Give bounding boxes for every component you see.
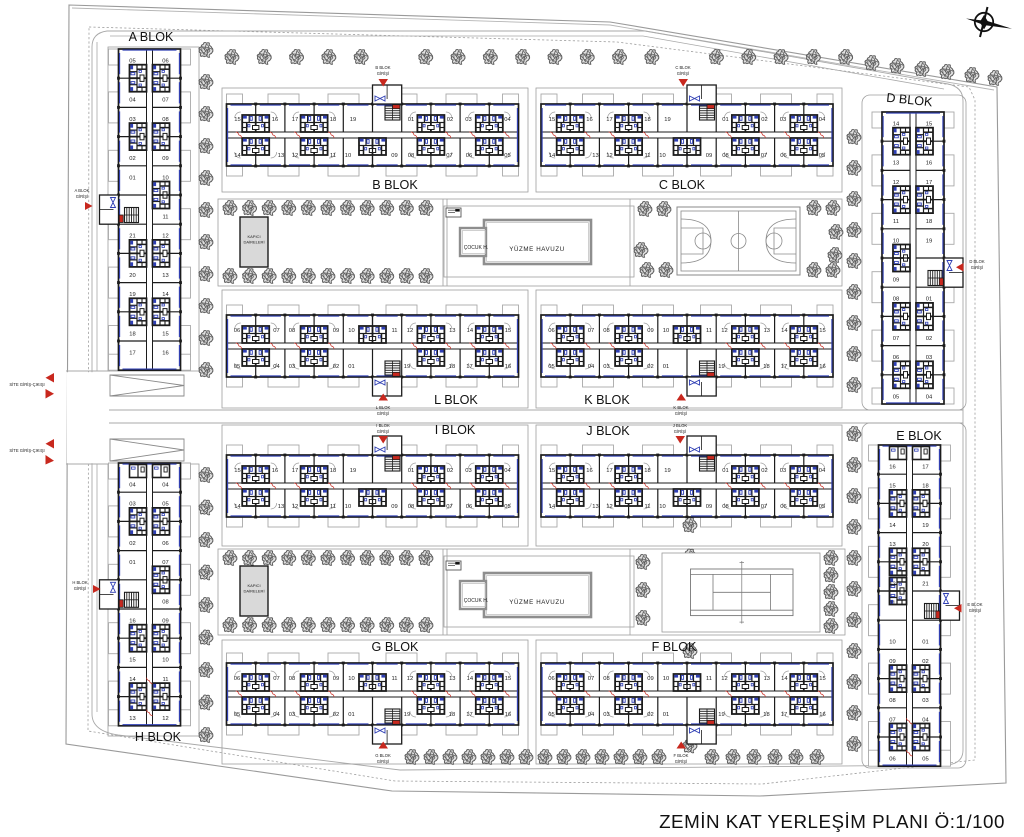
svg-text:04: 04: [129, 483, 136, 489]
svg-text:18: 18: [763, 712, 769, 718]
svg-text:11: 11: [391, 676, 397, 682]
svg-text:15: 15: [234, 117, 240, 123]
svg-text:15: 15: [549, 117, 555, 123]
svg-text:GİRİŞİ: GİRİŞİ: [971, 265, 984, 270]
svg-text:03: 03: [926, 355, 932, 361]
svg-text:C BLOK: C BLOK: [659, 178, 706, 192]
svg-text:17: 17: [129, 351, 135, 357]
svg-text:01: 01: [348, 712, 354, 718]
svg-text:G BLOK: G BLOK: [375, 753, 391, 758]
svg-text:13: 13: [278, 504, 284, 510]
svg-text:12: 12: [162, 716, 168, 722]
svg-text:E BLOK: E BLOK: [967, 602, 982, 607]
svg-text:12: 12: [407, 676, 413, 682]
svg-text:07: 07: [889, 717, 895, 723]
svg-text:16: 16: [272, 468, 278, 474]
svg-text:14: 14: [467, 328, 474, 334]
svg-text:08: 08: [289, 328, 295, 334]
svg-text:06: 06: [234, 676, 240, 682]
svg-text:01: 01: [722, 117, 728, 123]
svg-text:10: 10: [889, 640, 895, 646]
svg-text:04: 04: [588, 712, 595, 718]
svg-text:E BLOK: E BLOK: [896, 429, 942, 443]
svg-text:GİRİŞİ: GİRİŞİ: [969, 608, 982, 613]
svg-text:12: 12: [292, 153, 298, 159]
svg-text:05: 05: [162, 502, 168, 508]
svg-text:09: 09: [889, 659, 895, 665]
svg-text:15: 15: [234, 468, 240, 474]
svg-text:11: 11: [644, 153, 650, 159]
svg-text:21: 21: [129, 234, 135, 240]
svg-text:09: 09: [333, 676, 339, 682]
svg-text:GİRİŞİ: GİRİŞİ: [674, 429, 687, 434]
svg-text:04: 04: [273, 364, 280, 370]
svg-text:GİRİŞİ: GİRİŞİ: [677, 71, 690, 76]
svg-text:G BLOK: G BLOK: [372, 640, 419, 654]
svg-text:19: 19: [664, 117, 670, 123]
svg-text:16: 16: [819, 364, 825, 370]
svg-text:13: 13: [449, 328, 455, 334]
svg-text:GİRİŞİ: GİRİŞİ: [377, 411, 390, 416]
svg-text:18: 18: [330, 468, 336, 474]
svg-text:14: 14: [129, 677, 136, 683]
svg-text:A BLOK: A BLOK: [129, 30, 174, 44]
svg-text:03: 03: [129, 502, 135, 508]
svg-text:J BLOK: J BLOK: [673, 423, 688, 428]
svg-text:16: 16: [889, 465, 895, 471]
svg-text:21: 21: [922, 581, 928, 587]
svg-text:06: 06: [162, 59, 168, 65]
svg-text:04: 04: [273, 712, 280, 718]
svg-text:14: 14: [162, 292, 169, 298]
svg-text:17: 17: [606, 117, 612, 123]
svg-text:15: 15: [819, 676, 825, 682]
svg-text:GİRİŞİ: GİRİŞİ: [76, 194, 89, 199]
svg-text:05: 05: [548, 364, 554, 370]
svg-text:04: 04: [922, 717, 929, 723]
svg-text:GİRİŞİ: GİRİŞİ: [675, 411, 688, 416]
svg-text:D BLOK: D BLOK: [886, 91, 934, 110]
svg-text:18: 18: [922, 484, 928, 490]
svg-text:11: 11: [893, 219, 899, 225]
svg-text:02: 02: [761, 117, 767, 123]
svg-text:07: 07: [761, 153, 767, 159]
svg-text:13: 13: [893, 161, 899, 167]
svg-text:11: 11: [330, 153, 336, 159]
svg-text:C BLOK: C BLOK: [675, 65, 691, 70]
svg-text:18: 18: [644, 468, 650, 474]
svg-text:13: 13: [764, 328, 770, 334]
svg-text:DAİRELERİ: DAİRELERİ: [243, 589, 264, 594]
svg-text:06: 06: [548, 676, 554, 682]
svg-text:GİRİŞİ: GİRİŞİ: [377, 759, 390, 764]
svg-text:19: 19: [718, 712, 724, 718]
svg-text:15: 15: [505, 328, 511, 334]
svg-text:14: 14: [234, 504, 241, 510]
svg-text:12: 12: [162, 234, 168, 240]
svg-text:18: 18: [926, 219, 932, 225]
svg-text:06: 06: [780, 153, 786, 159]
svg-text:GİRİŞİ: GİRİŞİ: [377, 71, 390, 76]
svg-text:12: 12: [893, 180, 899, 186]
svg-text:07: 07: [761, 504, 767, 510]
svg-text:05: 05: [234, 712, 240, 718]
svg-text:18: 18: [449, 712, 455, 718]
svg-text:15: 15: [505, 676, 511, 682]
svg-text:18: 18: [644, 117, 650, 123]
svg-text:12: 12: [721, 676, 727, 682]
svg-text:11: 11: [162, 677, 168, 683]
svg-text:01: 01: [348, 364, 354, 370]
svg-text:01: 01: [408, 117, 414, 123]
svg-text:07: 07: [588, 676, 594, 682]
svg-text:17: 17: [922, 465, 928, 471]
svg-text:19: 19: [664, 468, 670, 474]
svg-text:F BLOK: F BLOK: [652, 640, 697, 654]
svg-text:09: 09: [162, 156, 168, 162]
svg-text:02: 02: [761, 468, 767, 474]
svg-text:05: 05: [129, 59, 135, 65]
svg-text:01: 01: [129, 175, 135, 181]
svg-text:05: 05: [893, 394, 899, 400]
svg-text:ÇOCUK H.: ÇOCUK H.: [464, 598, 488, 604]
svg-text:ZEMİN KAT YERLEŞİM PLANI Ö:1/: ZEMİN KAT YERLEŞİM PLANI Ö:1/100: [659, 811, 1005, 832]
svg-text:L BLOK: L BLOK: [434, 393, 478, 407]
svg-text:SİTE GİRİŞ-ÇIKIŞI: SİTE GİRİŞ-ÇIKIŞI: [9, 382, 44, 387]
svg-text:I BLOK: I BLOK: [376, 423, 390, 428]
svg-text:01: 01: [926, 297, 932, 303]
svg-text:05: 05: [819, 504, 825, 510]
svg-text:15: 15: [129, 658, 135, 664]
svg-text:08: 08: [162, 117, 168, 123]
svg-text:19: 19: [350, 117, 356, 123]
svg-text:16: 16: [926, 161, 932, 167]
svg-text:10: 10: [663, 676, 669, 682]
svg-text:D BLOK: D BLOK: [969, 259, 985, 264]
svg-text:03: 03: [465, 117, 471, 123]
svg-text:07: 07: [446, 504, 452, 510]
svg-text:09: 09: [893, 278, 899, 284]
svg-text:09: 09: [706, 504, 712, 510]
svg-text:13: 13: [764, 676, 770, 682]
svg-text:08: 08: [603, 676, 609, 682]
svg-text:10: 10: [893, 238, 899, 244]
svg-text:08: 08: [893, 297, 899, 303]
svg-text:13: 13: [449, 676, 455, 682]
svg-text:12: 12: [606, 153, 612, 159]
svg-text:09: 09: [706, 153, 712, 159]
svg-text:16: 16: [819, 712, 825, 718]
svg-text:01: 01: [663, 712, 669, 718]
svg-text:KAPICI: KAPICI: [247, 234, 260, 239]
svg-text:01: 01: [408, 468, 414, 474]
svg-text:B BLOK: B BLOK: [375, 65, 390, 70]
svg-text:02: 02: [447, 117, 453, 123]
svg-text:11: 11: [889, 601, 895, 607]
svg-text:02: 02: [647, 712, 653, 718]
svg-text:YÜZME HAVUZU: YÜZME HAVUZU: [509, 599, 565, 606]
svg-text:04: 04: [588, 364, 595, 370]
svg-text:02: 02: [129, 541, 135, 547]
svg-text:01: 01: [722, 468, 728, 474]
svg-text:04: 04: [819, 117, 826, 123]
svg-text:18: 18: [763, 364, 769, 370]
svg-text:19: 19: [404, 712, 410, 718]
svg-text:08: 08: [889, 698, 895, 704]
svg-text:I BLOK: I BLOK: [435, 423, 476, 437]
svg-text:06: 06: [780, 504, 786, 510]
svg-text:04: 04: [129, 98, 136, 104]
svg-text:05: 05: [548, 712, 554, 718]
svg-text:06: 06: [548, 328, 554, 334]
svg-text:F BLOK: F BLOK: [674, 753, 689, 758]
svg-text:14: 14: [889, 523, 896, 529]
svg-text:11: 11: [706, 328, 712, 334]
svg-text:12: 12: [721, 328, 727, 334]
svg-text:07: 07: [162, 560, 168, 566]
svg-text:10: 10: [663, 328, 669, 334]
svg-text:17: 17: [466, 364, 472, 370]
svg-text:11: 11: [162, 215, 168, 221]
svg-text:08: 08: [408, 153, 414, 159]
svg-text:06: 06: [234, 328, 240, 334]
svg-text:03: 03: [289, 712, 295, 718]
svg-text:07: 07: [162, 98, 168, 104]
svg-text:02: 02: [447, 468, 453, 474]
svg-text:13: 13: [278, 153, 284, 159]
svg-text:14: 14: [893, 122, 900, 128]
svg-text:09: 09: [647, 676, 653, 682]
svg-text:12: 12: [606, 504, 612, 510]
svg-text:11: 11: [391, 328, 397, 334]
svg-text:08: 08: [162, 599, 168, 605]
svg-text:11: 11: [706, 676, 712, 682]
svg-text:10: 10: [162, 175, 168, 181]
svg-text:H BLOK: H BLOK: [72, 580, 88, 585]
svg-text:07: 07: [273, 328, 279, 334]
svg-text:11: 11: [644, 504, 650, 510]
svg-text:13: 13: [129, 716, 135, 722]
svg-text:13: 13: [592, 153, 598, 159]
svg-text:14: 14: [549, 504, 556, 510]
svg-text:03: 03: [780, 468, 786, 474]
svg-text:03: 03: [129, 117, 135, 123]
svg-text:03: 03: [603, 712, 609, 718]
svg-text:03: 03: [289, 364, 295, 370]
svg-text:18: 18: [129, 331, 135, 337]
svg-text:04: 04: [926, 394, 933, 400]
svg-text:04: 04: [504, 117, 511, 123]
svg-text:17: 17: [781, 712, 787, 718]
svg-text:KAPICI: KAPICI: [247, 583, 260, 588]
svg-text:05: 05: [504, 153, 510, 159]
svg-text:05: 05: [234, 364, 240, 370]
svg-text:15: 15: [162, 331, 168, 337]
svg-text:H BLOK: H BLOK: [135, 730, 182, 744]
svg-text:06: 06: [466, 504, 472, 510]
svg-text:DAİRELERİ: DAİRELERİ: [243, 240, 264, 245]
svg-text:18: 18: [330, 117, 336, 123]
svg-text:05: 05: [819, 153, 825, 159]
svg-text:07: 07: [588, 328, 594, 334]
svg-text:14: 14: [781, 328, 788, 334]
svg-text:17: 17: [606, 468, 612, 474]
svg-text:03: 03: [922, 698, 928, 704]
svg-text:05: 05: [504, 504, 510, 510]
svg-text:10: 10: [162, 658, 168, 664]
svg-text:09: 09: [391, 153, 397, 159]
svg-text:06: 06: [162, 541, 168, 547]
svg-text:18: 18: [449, 364, 455, 370]
svg-text:03: 03: [603, 364, 609, 370]
svg-text:02: 02: [922, 659, 928, 665]
svg-text:17: 17: [781, 364, 787, 370]
svg-text:08: 08: [722, 504, 728, 510]
svg-text:04: 04: [504, 468, 511, 474]
svg-text:19: 19: [926, 238, 932, 244]
svg-text:10: 10: [345, 504, 351, 510]
svg-text:13: 13: [592, 504, 598, 510]
svg-text:13: 13: [889, 542, 895, 548]
svg-text:08: 08: [722, 153, 728, 159]
svg-text:02: 02: [129, 156, 135, 162]
svg-text:14: 14: [549, 153, 556, 159]
svg-text:YÜZME HAVUZU: YÜZME HAVUZU: [509, 246, 565, 253]
svg-text:20: 20: [129, 273, 135, 279]
svg-text:10: 10: [348, 676, 354, 682]
svg-text:16: 16: [586, 117, 592, 123]
svg-text:15: 15: [549, 468, 555, 474]
svg-text:07: 07: [893, 336, 899, 342]
svg-text:13: 13: [162, 273, 168, 279]
svg-text:09: 09: [647, 328, 653, 334]
svg-text:07: 07: [446, 153, 452, 159]
svg-text:14: 14: [781, 676, 788, 682]
svg-text:19: 19: [129, 292, 135, 298]
svg-text:SİTE GİRİŞ-ÇIKIŞI: SİTE GİRİŞ-ÇIKIŞI: [9, 448, 44, 453]
svg-text:06: 06: [889, 757, 895, 763]
svg-text:03: 03: [465, 468, 471, 474]
svg-text:17: 17: [926, 180, 932, 186]
svg-text:B BLOK: B BLOK: [372, 178, 418, 192]
svg-text:01: 01: [129, 560, 135, 566]
svg-text:14: 14: [467, 676, 474, 682]
svg-text:04: 04: [819, 468, 826, 474]
svg-text:16: 16: [129, 619, 135, 625]
svg-text:15: 15: [889, 484, 895, 490]
svg-text:02: 02: [333, 712, 339, 718]
svg-text:GİRİŞİ: GİRİŞİ: [74, 586, 87, 591]
svg-text:10: 10: [345, 153, 351, 159]
svg-text:L BLOK: L BLOK: [376, 405, 391, 410]
svg-text:10: 10: [659, 153, 665, 159]
svg-text:17: 17: [466, 712, 472, 718]
svg-text:16: 16: [505, 364, 511, 370]
svg-text:09: 09: [333, 328, 339, 334]
svg-text:14: 14: [234, 153, 241, 159]
svg-text:19: 19: [718, 364, 724, 370]
svg-text:01: 01: [663, 364, 669, 370]
svg-text:01: 01: [922, 640, 928, 646]
svg-text:03: 03: [780, 117, 786, 123]
svg-text:08: 08: [289, 676, 295, 682]
svg-text:07: 07: [273, 676, 279, 682]
svg-text:K BLOK: K BLOK: [673, 405, 688, 410]
svg-text:16: 16: [505, 712, 511, 718]
svg-text:19: 19: [922, 523, 928, 529]
svg-text:06: 06: [466, 153, 472, 159]
svg-text:16: 16: [586, 468, 592, 474]
svg-text:GİRİŞİ: GİRİŞİ: [675, 759, 688, 764]
svg-text:15: 15: [819, 328, 825, 334]
svg-text:08: 08: [408, 504, 414, 510]
svg-text:17: 17: [292, 468, 298, 474]
svg-text:GİRİŞİ: GİRİŞİ: [377, 429, 390, 434]
svg-text:10: 10: [659, 504, 665, 510]
svg-text:02: 02: [647, 364, 653, 370]
svg-text:20: 20: [922, 542, 928, 548]
svg-text:05: 05: [922, 757, 928, 763]
svg-text:12: 12: [407, 328, 413, 334]
svg-text:02: 02: [333, 364, 339, 370]
svg-text:08: 08: [603, 328, 609, 334]
svg-text:09: 09: [162, 619, 168, 625]
svg-text:12: 12: [292, 504, 298, 510]
svg-text:16: 16: [272, 117, 278, 123]
svg-text:09: 09: [391, 504, 397, 510]
svg-text:J BLOK: J BLOK: [586, 424, 630, 438]
svg-text:K BLOK: K BLOK: [584, 393, 630, 407]
svg-text:04: 04: [162, 483, 169, 489]
svg-text:17: 17: [292, 117, 298, 123]
svg-text:12: 12: [889, 581, 895, 587]
svg-text:16: 16: [162, 351, 168, 357]
svg-text:02: 02: [926, 336, 932, 342]
svg-text:11: 11: [330, 504, 336, 510]
svg-text:10: 10: [348, 328, 354, 334]
svg-text:ÇOCUK H.: ÇOCUK H.: [464, 245, 488, 251]
svg-text:A BLOK: A BLOK: [75, 188, 90, 193]
svg-text:06: 06: [893, 355, 899, 361]
svg-text:15: 15: [926, 122, 932, 128]
svg-text:19: 19: [350, 468, 356, 474]
svg-text:19: 19: [404, 364, 410, 370]
